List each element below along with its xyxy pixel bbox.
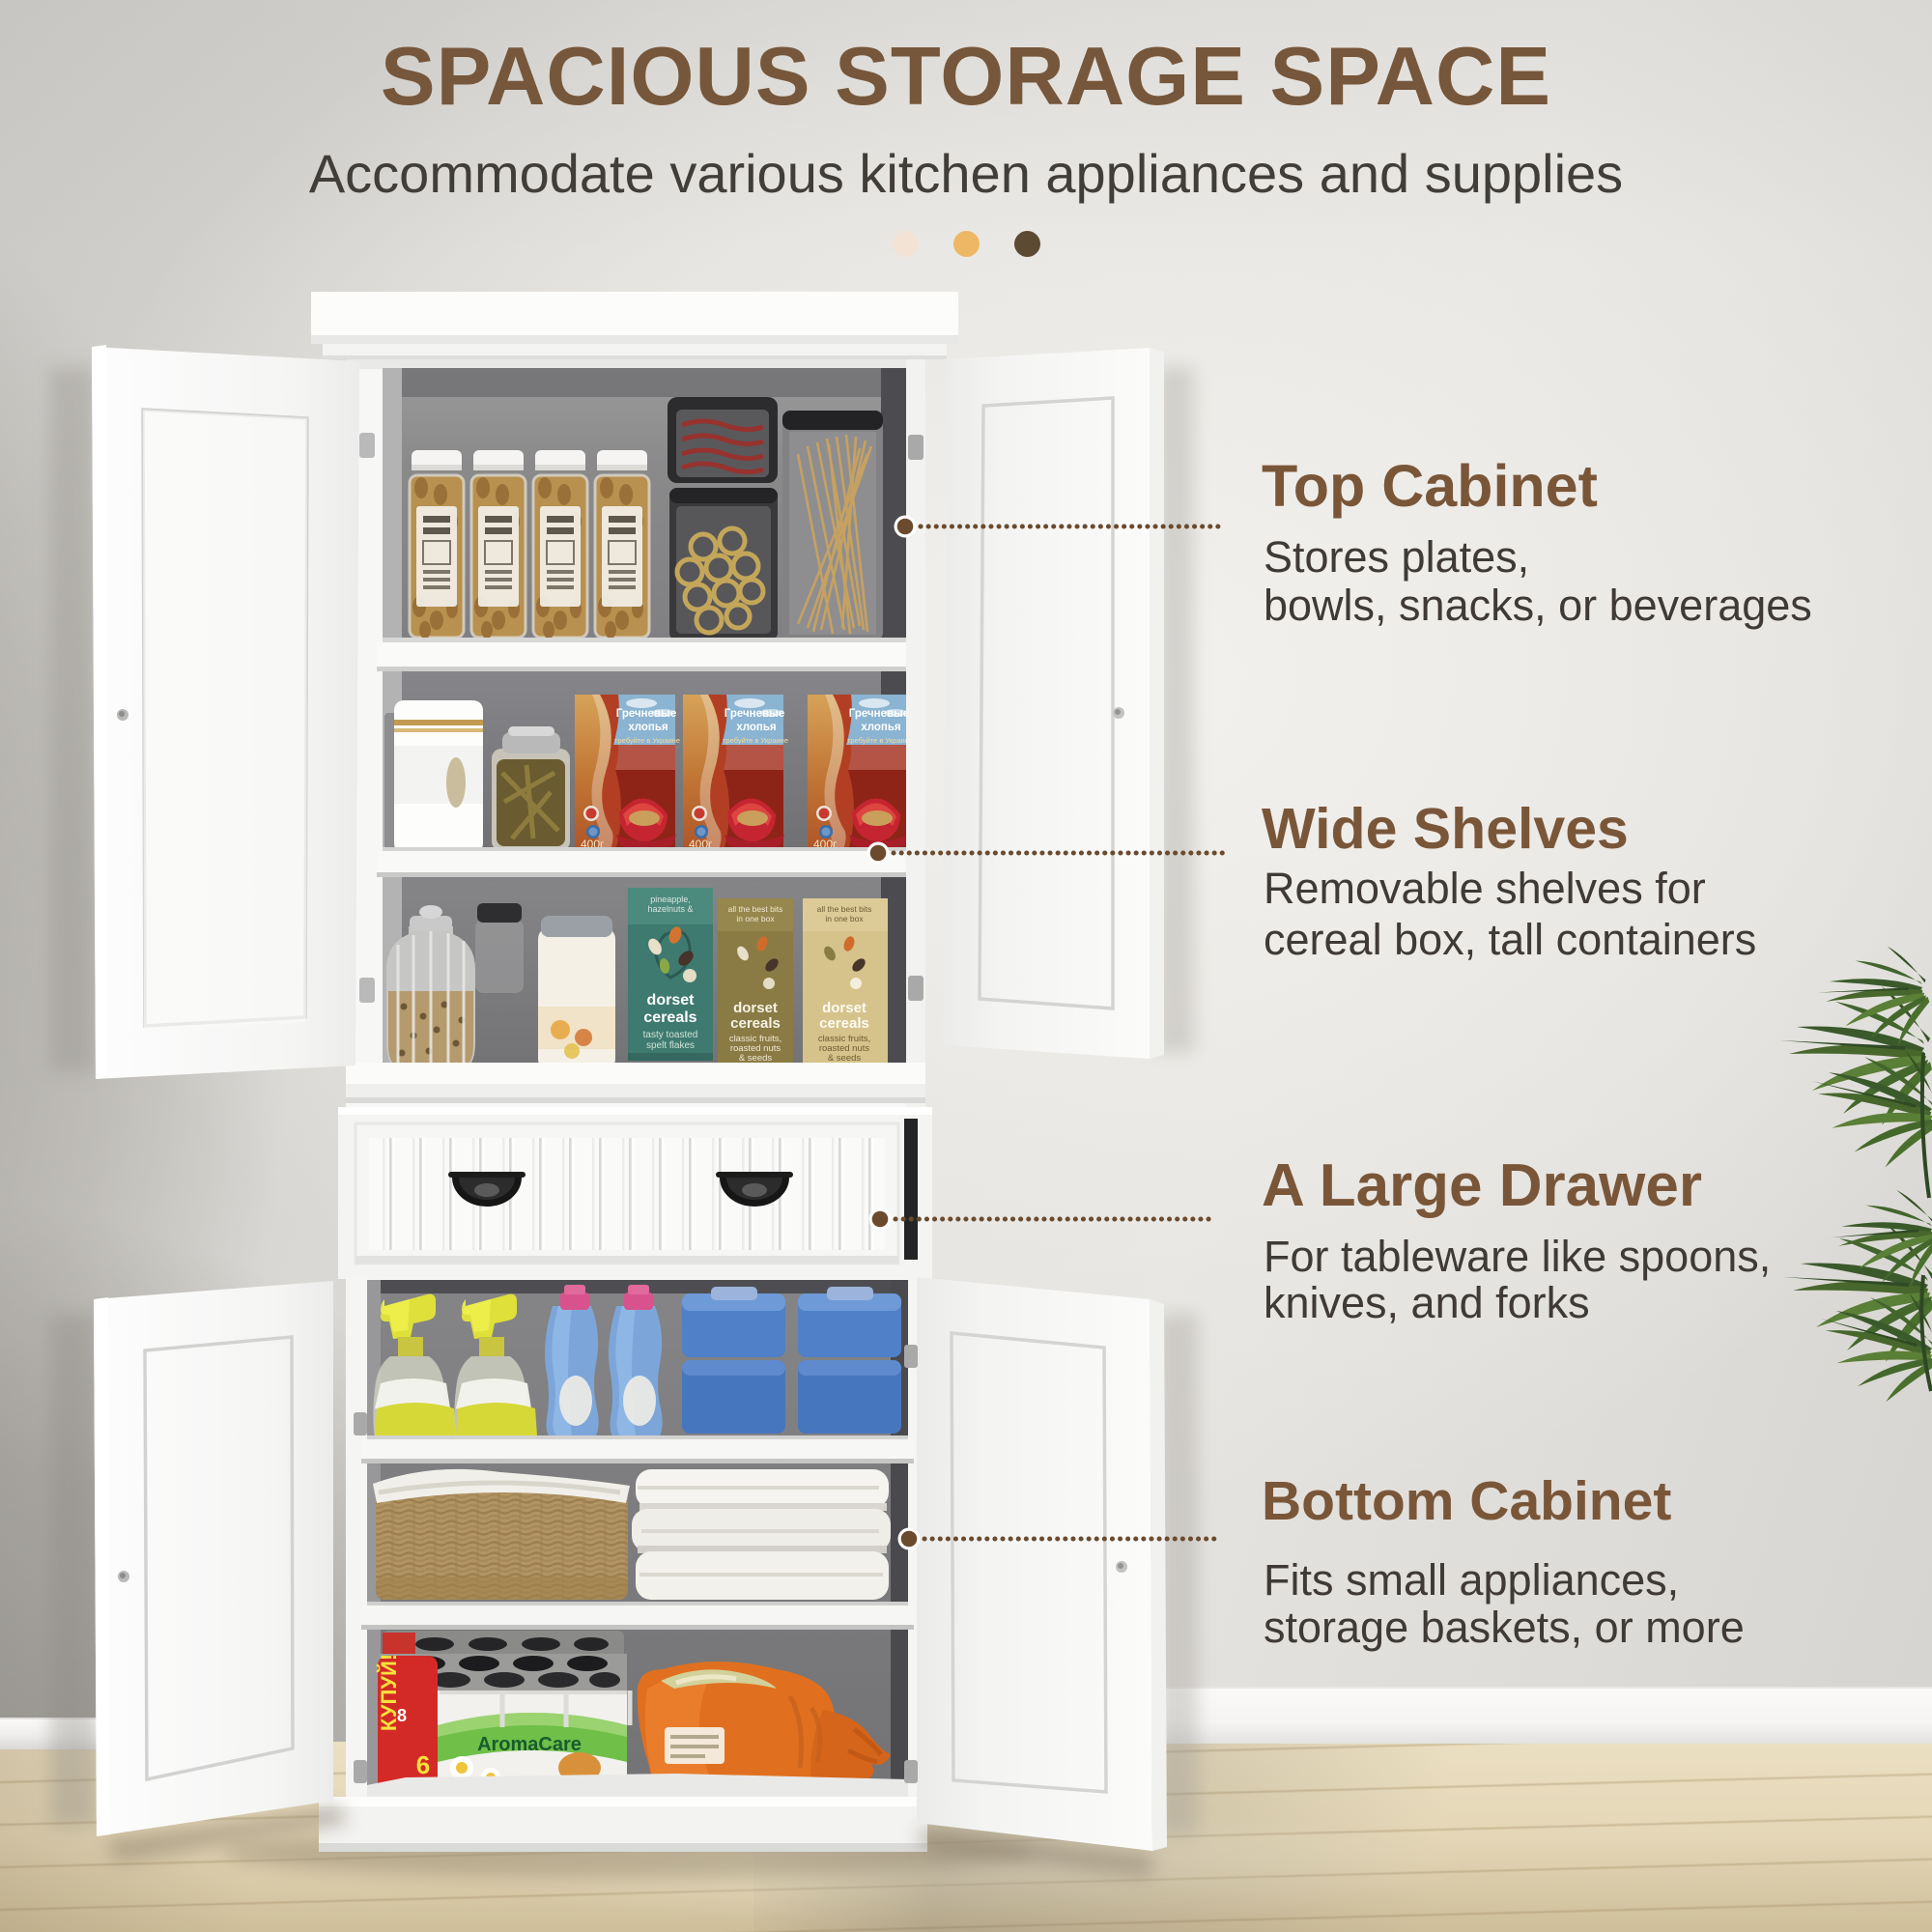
svg-text:требуйте в Украине: требуйте в Украине [614,736,680,745]
svg-text:dorset: dorset [647,992,696,1009]
svg-text:& seeds: & seeds [739,1053,773,1064]
svg-text:& seeds: & seeds [828,1053,862,1064]
svg-text:cereals: cereals [643,1009,696,1026]
svg-text:cereals: cereals [730,1015,781,1032]
svg-text:cereals: cereals [819,1015,869,1032]
svg-text:dorset: dorset [822,1000,867,1016]
svg-text:AromaCare: AromaCare [477,1734,582,1755]
svg-text:in one box: in one box [736,914,775,923]
svg-text:spelt flakes: spelt flakes [646,1040,695,1051]
svg-text:hazelnuts &: hazelnuts & [647,904,693,914]
svg-text:all the best bits: all the best bits [728,904,783,914]
svg-text:all the best bits: all the best bits [817,904,872,914]
svg-text:хлопья: хлопья [628,722,668,733]
svg-text:8: 8 [397,1706,407,1725]
svg-text:6: 6 [416,1750,430,1779]
svg-text:dorset: dorset [733,1000,778,1016]
svg-text:tasty toasted: tasty toasted [643,1030,698,1040]
svg-text:in one box: in one box [825,914,864,923]
svg-text:pineapple,: pineapple, [650,895,691,904]
svg-text:Гречневые: Гречневые [616,708,677,720]
